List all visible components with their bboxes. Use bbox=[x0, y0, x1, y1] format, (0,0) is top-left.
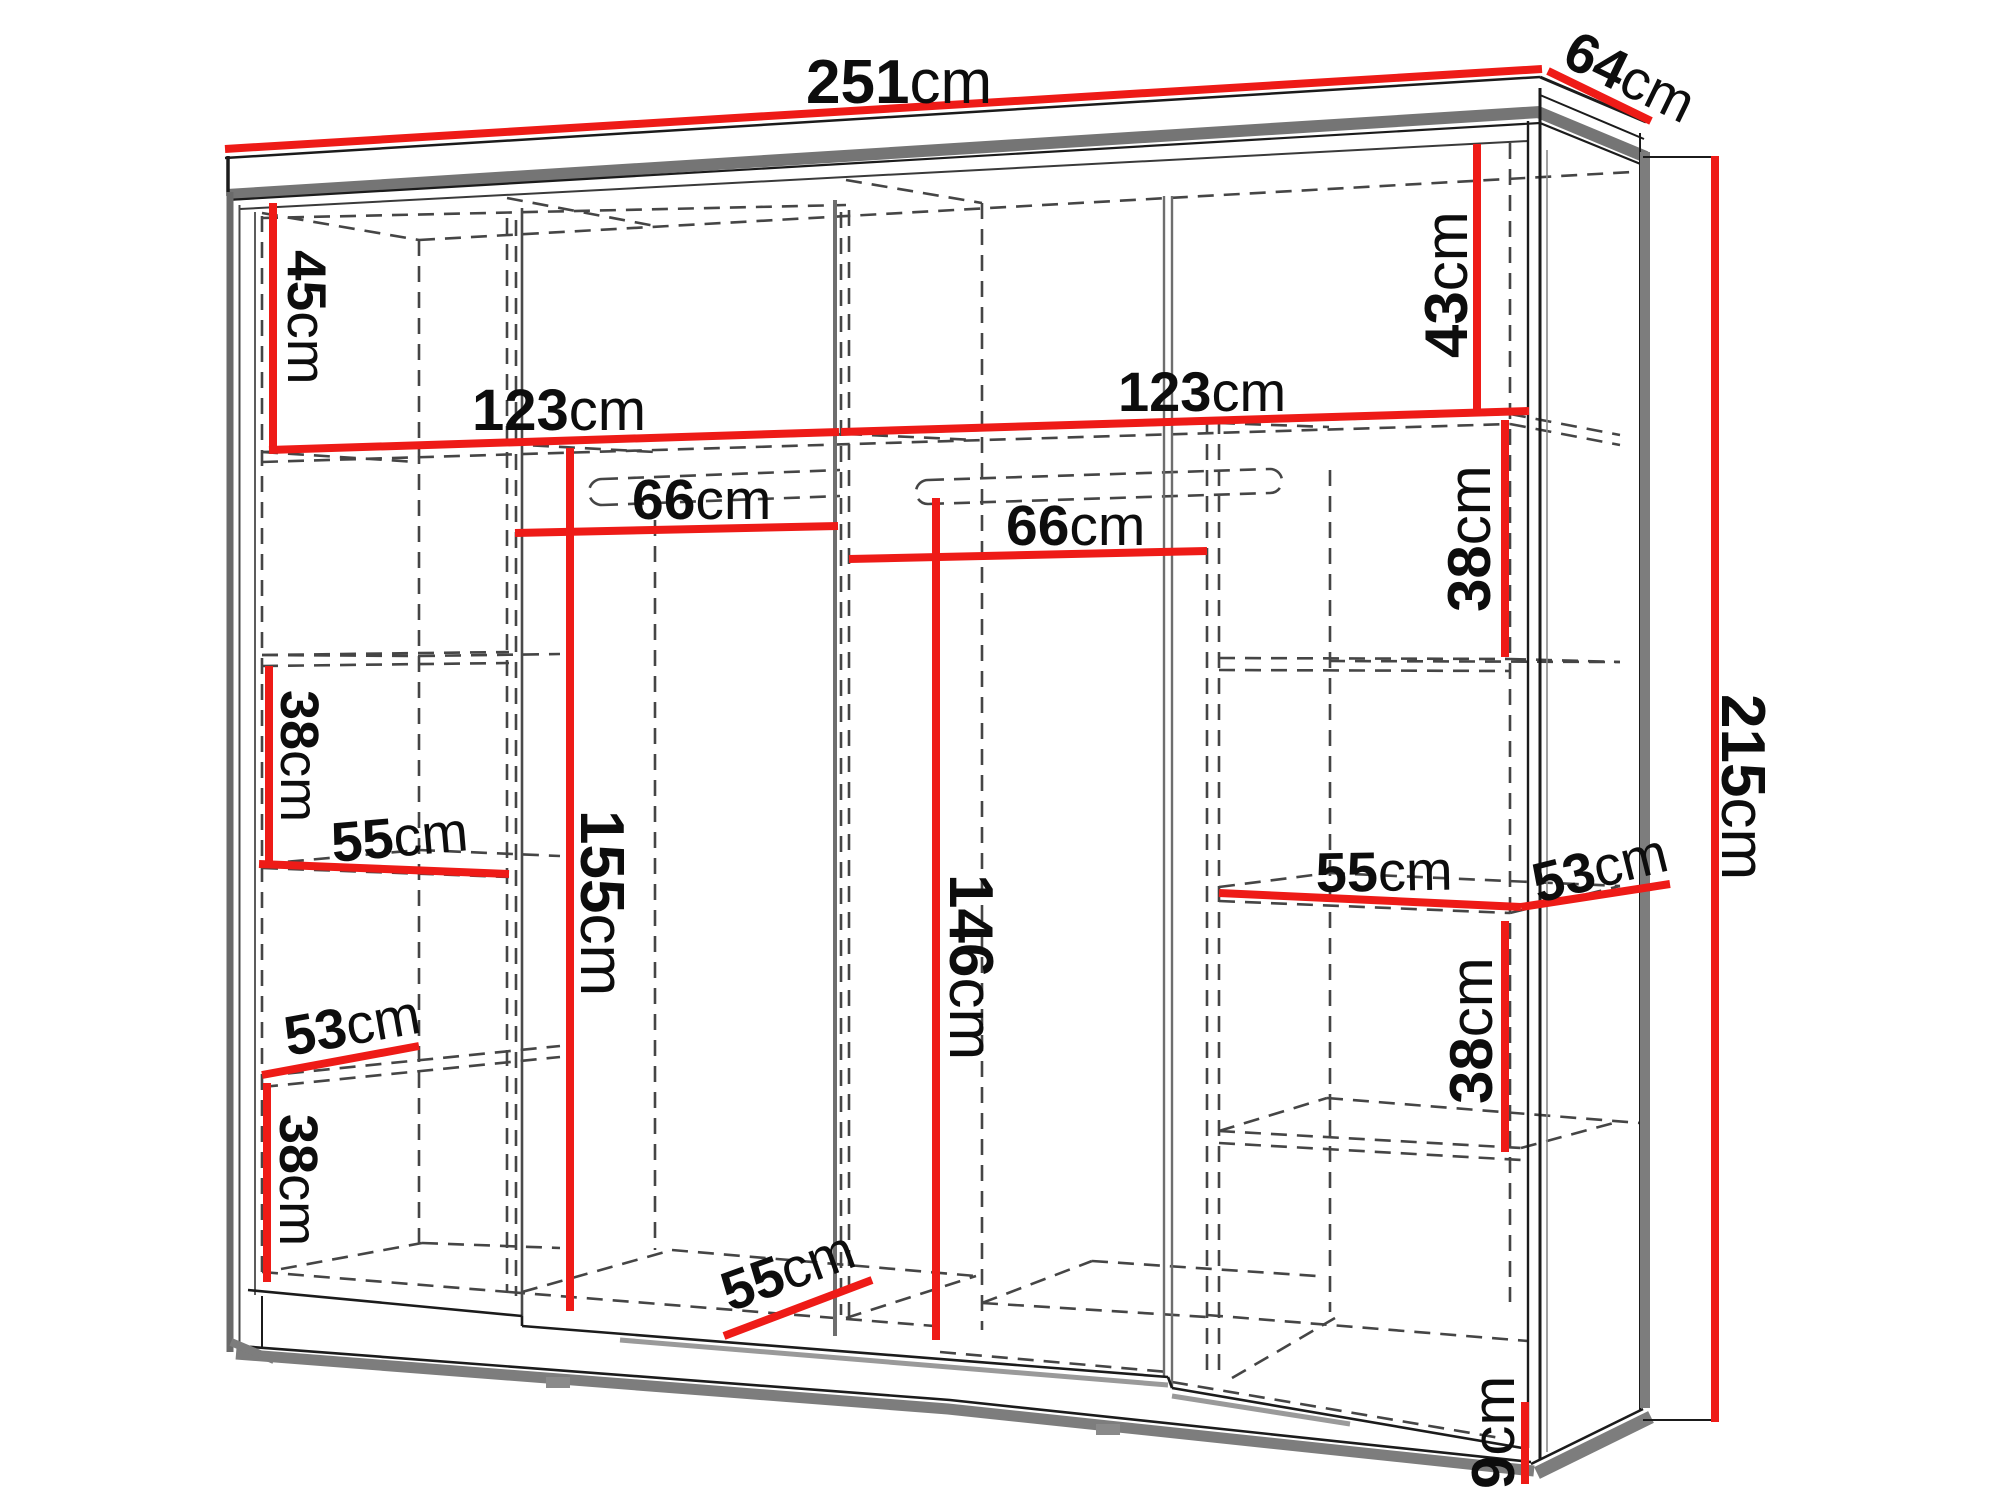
svg-text:55cm: 55cm bbox=[1315, 839, 1453, 904]
svg-text:146cm: 146cm bbox=[936, 874, 1005, 1060]
svg-text:155cm: 155cm bbox=[567, 810, 636, 996]
svg-text:55cm: 55cm bbox=[329, 799, 471, 874]
svg-text:38cm: 38cm bbox=[1438, 957, 1505, 1104]
svg-text:38cm: 38cm bbox=[269, 690, 329, 822]
svg-text:43cm: 43cm bbox=[1413, 211, 1480, 358]
svg-text:45cm: 45cm bbox=[276, 250, 338, 385]
svg-text:123cm: 123cm bbox=[1118, 360, 1286, 423]
svg-text:38cm: 38cm bbox=[1436, 465, 1503, 612]
svg-text:66cm: 66cm bbox=[1006, 494, 1145, 558]
svg-text:215cm: 215cm bbox=[1708, 694, 1777, 880]
svg-text:123cm: 123cm bbox=[472, 378, 646, 443]
svg-text:9cm: 9cm bbox=[1460, 1376, 1527, 1489]
svg-text:38cm: 38cm bbox=[268, 1114, 328, 1246]
svg-text:66cm: 66cm bbox=[632, 468, 771, 532]
svg-text:251cm: 251cm bbox=[806, 48, 992, 117]
